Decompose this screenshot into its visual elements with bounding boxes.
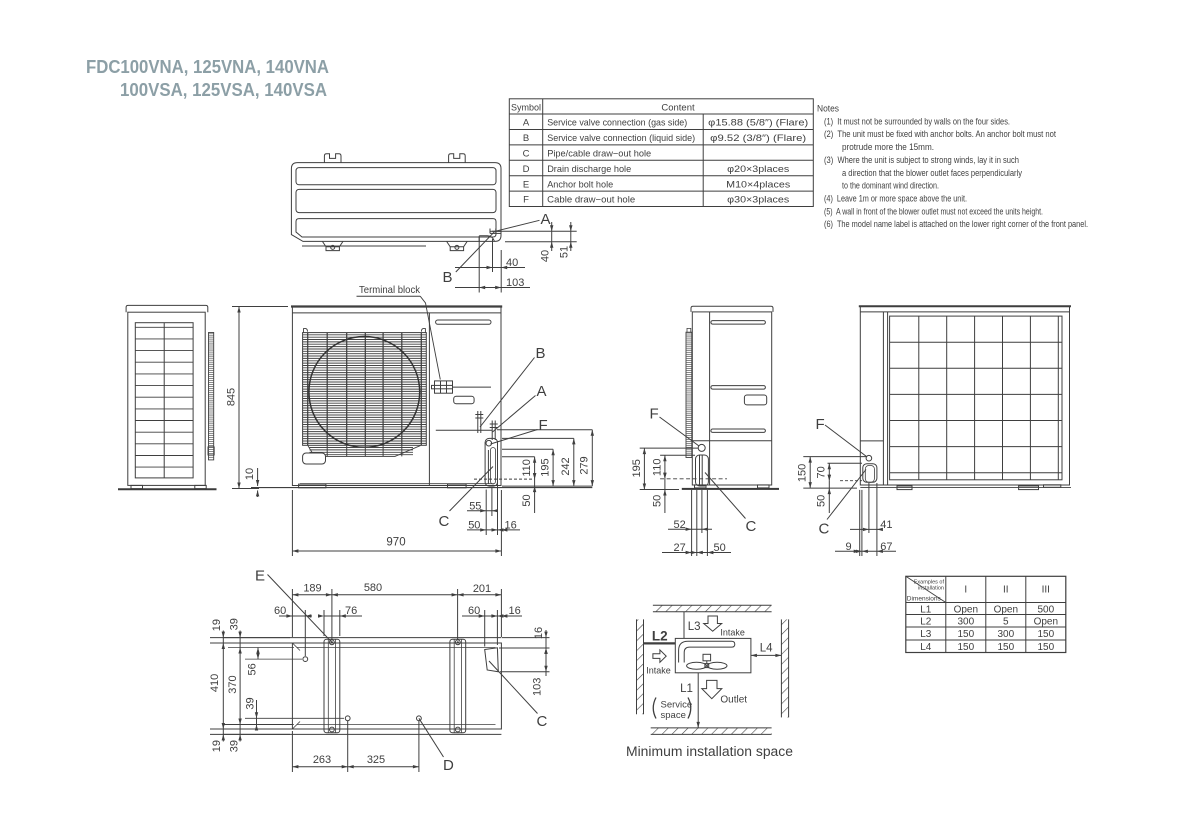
svg-text:a direction that the blower ou: a direction that the blower outlet faces… [842, 168, 1022, 178]
svg-text:195: 195 [540, 458, 552, 476]
svg-text:E: E [255, 568, 265, 585]
svg-text:C: C [819, 521, 830, 538]
svg-text:103: 103 [531, 678, 543, 696]
svg-text:50: 50 [521, 494, 533, 506]
svg-text:970: 970 [386, 537, 405, 549]
svg-text:φ30×3places: φ30×3places [727, 195, 789, 206]
svg-text:Drain discharge hole: Drain discharge hole [547, 164, 631, 175]
svg-text:370: 370 [227, 675, 239, 693]
svg-text:60: 60 [274, 605, 286, 617]
svg-text:F: F [816, 416, 825, 433]
svg-text:150: 150 [797, 464, 809, 482]
svg-text:φ9.52 (3/8″) (Flare): φ9.52 (3/8″) (Flare) [710, 133, 806, 144]
svg-text:39: 39 [244, 697, 256, 709]
svg-text:protrude more the 15mm.: protrude more the 15mm. [842, 142, 934, 152]
svg-text:A: A [523, 118, 530, 129]
svg-text:E: E [523, 179, 529, 190]
svg-text:41: 41 [880, 519, 892, 531]
svg-text:(3) Where the unit is subject: (3) Where the unit is subject to strong … [824, 155, 1019, 165]
svg-text:FDC100VNA, 125VNA, 140VNA: FDC100VNA, 125VNA, 140VNA [86, 56, 329, 77]
svg-text:C: C [537, 713, 548, 730]
svg-text:Cable draw−out hole: Cable draw−out hole [547, 195, 635, 206]
svg-text:II: II [1003, 585, 1009, 596]
svg-text:installation: installation [918, 586, 944, 592]
svg-text:Anchor bolt hole: Anchor bolt hole [547, 179, 613, 190]
svg-text:Notes: Notes [817, 104, 839, 114]
svg-text:39: 39 [229, 740, 241, 752]
svg-text:φ20×3places: φ20×3places [727, 164, 789, 175]
svg-text:D: D [523, 164, 530, 175]
svg-text:Terminal block: Terminal block [359, 284, 421, 296]
svg-text:150: 150 [957, 629, 974, 640]
svg-text:B: B [443, 269, 453, 286]
svg-text:50: 50 [651, 495, 663, 507]
svg-text:55: 55 [469, 501, 481, 513]
svg-text:B: B [523, 133, 529, 144]
svg-text:L2: L2 [920, 617, 932, 628]
svg-text:space: space [661, 710, 686, 721]
svg-text:(2) The unit must be fixed wi: (2) The unit must be fixed with anchor b… [824, 129, 1056, 139]
svg-text:189: 189 [303, 582, 321, 594]
svg-text:56: 56 [246, 663, 258, 675]
svg-text:263: 263 [313, 754, 331, 766]
svg-text:110: 110 [521, 459, 533, 477]
svg-text:300: 300 [957, 617, 974, 628]
svg-text:L2: L2 [652, 629, 668, 644]
svg-text:Open: Open [1034, 617, 1058, 628]
svg-text:150: 150 [957, 642, 974, 653]
svg-text:M10×4places: M10×4places [726, 179, 790, 190]
svg-text:Open: Open [954, 605, 978, 616]
svg-text:300: 300 [997, 629, 1014, 640]
svg-text:76: 76 [345, 605, 357, 617]
svg-text:L3: L3 [920, 629, 932, 640]
svg-text:(5) A wall in front of the bl: (5) A wall in front of the blower outlet… [824, 206, 1043, 216]
svg-text:Service: Service [661, 700, 693, 711]
svg-text:L3: L3 [688, 621, 701, 633]
svg-text:40: 40 [506, 257, 518, 269]
svg-text:103: 103 [506, 277, 524, 289]
svg-text:5: 5 [1003, 617, 1009, 628]
svg-text:F: F [539, 417, 548, 434]
svg-text:150: 150 [997, 642, 1014, 653]
svg-text:Minimum installation space: Minimum installation space [626, 744, 793, 759]
svg-text:410: 410 [209, 674, 221, 692]
svg-text:Outlet: Outlet [720, 695, 747, 706]
svg-text:(6) The model name label is a: (6) The model name label is attached on … [824, 219, 1088, 229]
svg-text:195: 195 [631, 459, 643, 477]
svg-text:L1: L1 [680, 683, 693, 695]
svg-text:60: 60 [468, 605, 480, 617]
svg-text:Symbol: Symbol [511, 103, 541, 114]
svg-text:A: A [541, 211, 551, 228]
svg-text:67: 67 [880, 541, 892, 553]
svg-text:Pipe/cable draw−out hole: Pipe/cable draw−out hole [547, 149, 651, 160]
svg-text:9: 9 [846, 541, 852, 553]
svg-text:39: 39 [229, 618, 241, 630]
svg-text:D: D [443, 757, 454, 774]
svg-text:Service valve connection (gas: Service valve connection (gas side) [547, 118, 687, 129]
svg-text:A: A [537, 383, 547, 400]
svg-text:580: 580 [364, 582, 382, 594]
svg-text:B: B [536, 345, 546, 362]
svg-text:110: 110 [651, 459, 663, 477]
svg-text:50: 50 [816, 495, 828, 507]
svg-text:L1: L1 [920, 605, 932, 616]
svg-text:16: 16 [509, 605, 521, 617]
svg-text:C: C [523, 149, 530, 160]
svg-text:(1) It must not be surrounded: (1) It must not be surrounded by walls o… [824, 116, 1010, 126]
svg-text:10: 10 [244, 468, 256, 480]
svg-text:845: 845 [225, 388, 237, 406]
svg-text:Intake: Intake [720, 628, 745, 638]
svg-text:I: I [964, 585, 967, 596]
svg-text:500: 500 [1037, 605, 1054, 616]
svg-text:F: F [650, 406, 659, 423]
svg-text:III: III [1042, 585, 1050, 596]
svg-text:50: 50 [468, 520, 480, 532]
svg-text:C: C [746, 518, 757, 535]
svg-text:51: 51 [559, 246, 571, 258]
svg-text:Service valve connection (liqu: Service valve connection (liquid side) [547, 133, 695, 144]
svg-text:150: 150 [1037, 629, 1054, 640]
svg-text:16: 16 [533, 627, 545, 639]
svg-text:50: 50 [714, 542, 726, 554]
svg-text:52: 52 [674, 519, 686, 531]
svg-text:Content: Content [661, 103, 695, 114]
svg-text:to the dominant wind direction: to the dominant wind direction. [842, 181, 939, 191]
svg-text:150: 150 [1037, 642, 1054, 653]
svg-text:L4: L4 [760, 643, 773, 655]
svg-text:C: C [439, 513, 450, 530]
svg-text:Open: Open [994, 605, 1018, 616]
svg-text:242: 242 [560, 457, 572, 475]
svg-text:201: 201 [473, 583, 491, 595]
svg-text:Dimensions: Dimensions [907, 596, 942, 603]
svg-text:27: 27 [674, 542, 686, 554]
svg-text:70: 70 [816, 466, 828, 478]
svg-text:L4: L4 [920, 642, 932, 653]
svg-text:279: 279 [579, 456, 591, 474]
svg-text:19: 19 [211, 740, 223, 752]
svg-text:16: 16 [505, 520, 517, 532]
svg-text:325: 325 [367, 754, 385, 766]
svg-text:F: F [523, 195, 529, 206]
svg-text:Intake: Intake [646, 666, 671, 676]
svg-text:40: 40 [540, 250, 552, 262]
svg-text:19: 19 [211, 619, 223, 631]
svg-text:(4) Leave 1m or more space ab: (4) Leave 1m or more space above the uni… [824, 193, 967, 203]
svg-text:100VSA, 125VSA, 140VSA: 100VSA, 125VSA, 140VSA [120, 79, 327, 100]
svg-text:φ15.88 (5/8″) (Flare): φ15.88 (5/8″) (Flare) [708, 118, 808, 129]
